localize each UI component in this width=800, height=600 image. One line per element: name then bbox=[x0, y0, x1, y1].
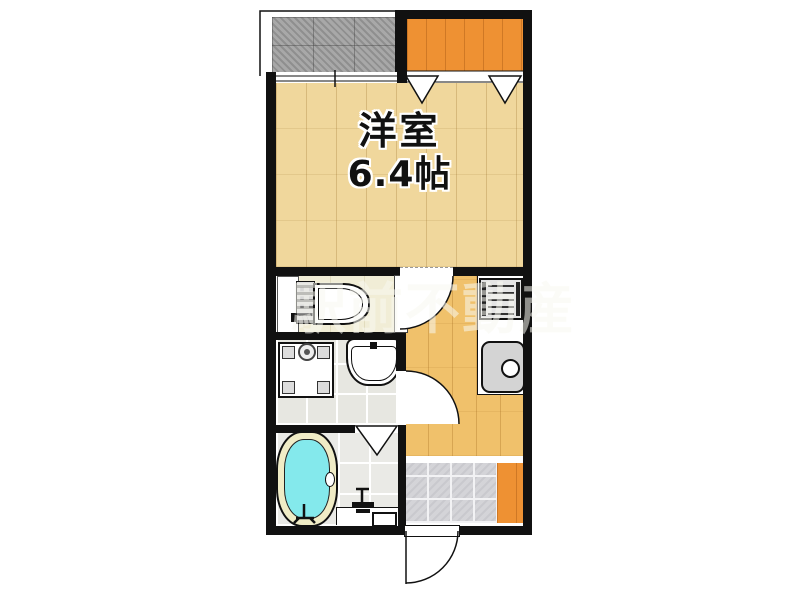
window-right-lines bbox=[407, 71, 523, 82]
washbasin-icon bbox=[346, 338, 402, 386]
bathtub-water bbox=[284, 439, 330, 519]
balcony-tiled bbox=[272, 17, 395, 74]
wall bbox=[266, 425, 355, 433]
sink-drain-icon bbox=[501, 359, 520, 378]
entry-door-arc bbox=[406, 531, 458, 583]
bath-apron bbox=[336, 507, 399, 525]
window-left-lines bbox=[276, 76, 397, 81]
wall bbox=[398, 425, 406, 526]
bathtub-icon bbox=[276, 431, 338, 527]
wall bbox=[458, 526, 532, 535]
main-room: 洋室 6.4帖 bbox=[276, 83, 523, 267]
room-name: 洋室 bbox=[276, 109, 523, 154]
pan-corner bbox=[282, 381, 295, 394]
genkan-wood-strip bbox=[497, 463, 523, 523]
wall bbox=[266, 526, 405, 535]
room-size: 6.4帖 bbox=[276, 154, 523, 196]
main-room-label: 洋室 6.4帖 bbox=[276, 109, 523, 196]
genkan-step bbox=[404, 456, 523, 463]
entry-door-threshold bbox=[404, 525, 460, 537]
wall bbox=[397, 10, 532, 19]
window-right bbox=[407, 71, 523, 83]
bathroom-door-opening bbox=[355, 425, 398, 433]
pan-corner bbox=[317, 381, 330, 394]
wall bbox=[396, 340, 406, 371]
wall bbox=[266, 72, 276, 535]
washing-machine-pan-icon bbox=[278, 342, 334, 398]
bathtub-handle-icon bbox=[325, 472, 335, 487]
pan-corner bbox=[317, 346, 330, 359]
wall bbox=[395, 10, 407, 83]
pan-faucet-icon bbox=[298, 343, 316, 361]
bath-stool-icon bbox=[372, 512, 397, 527]
wall bbox=[266, 72, 290, 83]
washbasin-inner-line bbox=[351, 346, 397, 381]
genkan-entrance bbox=[404, 463, 497, 523]
washroom-door-opening bbox=[396, 371, 406, 425]
floor-plan: 洋室 6.4帖 bbox=[0, 0, 800, 600]
pan-corner bbox=[282, 346, 295, 359]
balcony-wood-deck bbox=[407, 19, 523, 71]
pan-faucet-dot bbox=[304, 349, 310, 355]
watermark: 駅前不動産 bbox=[291, 264, 576, 344]
kitchen-sink-icon bbox=[481, 341, 525, 393]
